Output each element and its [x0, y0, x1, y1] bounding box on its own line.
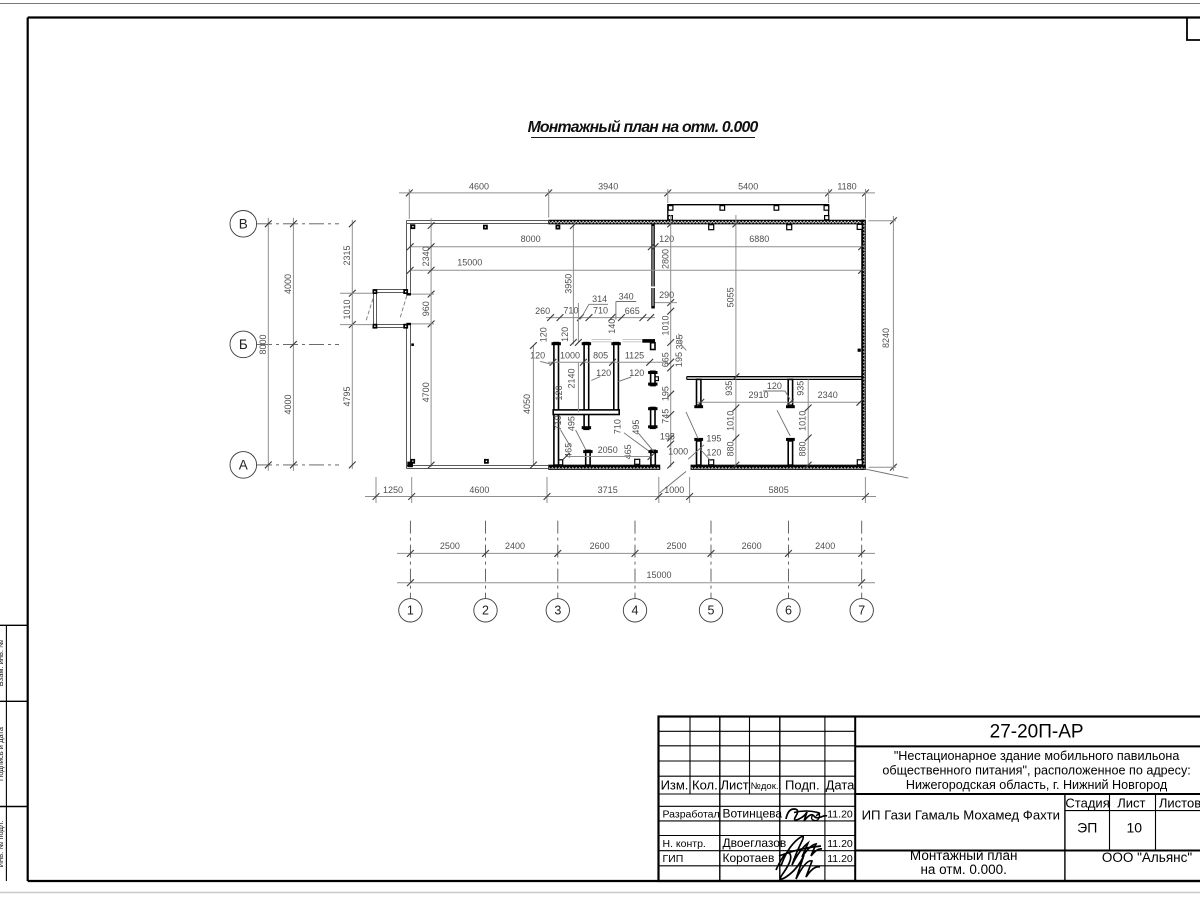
svg-text:195: 195 — [660, 386, 670, 401]
svg-text:15000: 15000 — [646, 570, 671, 580]
svg-text:4000: 4000 — [283, 274, 293, 294]
svg-text:935: 935 — [724, 381, 734, 396]
svg-text:120: 120 — [596, 368, 611, 378]
svg-text:Разработал: Разработал — [663, 808, 720, 820]
svg-text:120: 120 — [554, 385, 564, 400]
svg-text:ИП Гази Гамаль Мохамед Фахти: ИП Гази Гамаль Мохамед Фахти — [862, 808, 1060, 823]
svg-text:Монтажный план на отм. 0.000: Монтажный план на отм. 0.000 — [528, 119, 759, 136]
svg-text:1010: 1010 — [798, 411, 808, 431]
svg-text:340: 340 — [619, 291, 634, 301]
svg-text:1125: 1125 — [625, 351, 644, 361]
svg-text:195: 195 — [674, 352, 684, 367]
svg-text:Двоеглазов: Двоеглазов — [723, 836, 787, 850]
svg-text:4: 4 — [632, 604, 639, 618]
svg-text:10: 10 — [1127, 820, 1143, 836]
svg-text:2050: 2050 — [598, 445, 618, 455]
svg-text:710: 710 — [553, 415, 563, 430]
svg-text:1250: 1250 — [383, 485, 403, 495]
svg-text:195: 195 — [706, 434, 721, 444]
svg-text:4600: 4600 — [469, 181, 489, 191]
svg-text:120: 120 — [629, 368, 644, 378]
svg-text:3715: 3715 — [598, 485, 618, 495]
svg-text:6880: 6880 — [749, 234, 769, 244]
svg-text:880: 880 — [798, 441, 808, 456]
svg-text:Лист: Лист — [720, 778, 748, 793]
svg-text:Подпись и дата: Подпись и дата — [0, 726, 5, 781]
svg-text:2910: 2910 — [748, 390, 768, 400]
svg-text:4795: 4795 — [342, 386, 352, 406]
svg-text:Дата: Дата — [826, 778, 856, 793]
svg-text:Стадия: Стадия — [1065, 796, 1109, 811]
svg-text:2340: 2340 — [421, 246, 431, 266]
svg-text:2315: 2315 — [342, 245, 352, 265]
svg-text:2500: 2500 — [666, 541, 686, 551]
svg-text:4000: 4000 — [283, 394, 293, 414]
svg-text:260: 260 — [535, 306, 550, 316]
svg-text:Б: Б — [239, 337, 248, 352]
svg-text:2600: 2600 — [590, 541, 610, 551]
svg-text:745: 745 — [660, 409, 670, 424]
svg-text:Листов: Листов — [1159, 796, 1200, 811]
svg-text:4050: 4050 — [522, 394, 532, 414]
svg-text:710: 710 — [613, 419, 623, 434]
svg-text:880: 880 — [725, 441, 735, 456]
svg-text:Н. контр.: Н. контр. — [663, 838, 706, 850]
svg-text:2400: 2400 — [505, 541, 525, 551]
svg-text:3950: 3950 — [563, 274, 573, 294]
svg-text:465: 465 — [563, 443, 573, 458]
svg-text:Вотинцева: Вотинцева — [723, 807, 783, 821]
svg-text:8240: 8240 — [881, 328, 891, 348]
svg-text:Нижегородская область, г. Нижн: Нижегородская область, г. Нижний Новгоро… — [906, 778, 1168, 792]
svg-text:2400: 2400 — [815, 541, 835, 551]
svg-text:Инв. № подл.: Инв. № подл. — [0, 821, 5, 868]
svg-text:120: 120 — [706, 447, 721, 457]
svg-text:1000: 1000 — [664, 485, 684, 495]
svg-text:1010: 1010 — [725, 411, 735, 431]
svg-text:465: 465 — [623, 444, 633, 459]
svg-text:290: 290 — [659, 290, 674, 300]
svg-text:4600: 4600 — [469, 485, 489, 495]
svg-text:665: 665 — [625, 306, 640, 316]
svg-text:2500: 2500 — [440, 541, 460, 551]
svg-text:ЭП: ЭП — [1077, 820, 1097, 836]
svg-text:5: 5 — [708, 604, 715, 618]
svg-text:1010: 1010 — [660, 315, 670, 335]
svg-text:2340: 2340 — [818, 390, 838, 400]
svg-text:710: 710 — [593, 306, 608, 316]
svg-text:7: 7 — [858, 604, 865, 618]
svg-text:8000: 8000 — [258, 334, 268, 354]
svg-text:960: 960 — [421, 301, 431, 316]
svg-text:665: 665 — [660, 352, 670, 367]
svg-text:Изм.: Изм. — [661, 778, 689, 793]
svg-text:140: 140 — [607, 319, 617, 334]
svg-text:314: 314 — [592, 294, 607, 304]
svg-text:Кол.: Кол. — [692, 778, 718, 793]
svg-text:"Нестационарное здание мобильн: "Нестационарное здание мобильного павиль… — [894, 749, 1180, 763]
svg-text:120: 120 — [538, 327, 548, 342]
svg-text:2600: 2600 — [742, 541, 762, 551]
svg-text:Лист: Лист — [1117, 796, 1145, 811]
svg-text:ГИП: ГИП — [663, 853, 684, 865]
svg-text:11.20: 11.20 — [827, 838, 853, 850]
svg-text:805: 805 — [593, 351, 608, 361]
svg-text:на отм. 0.000.: на отм. 0.000. — [920, 862, 1006, 877]
svg-text:11.20: 11.20 — [827, 853, 853, 865]
svg-text:1180: 1180 — [837, 181, 856, 191]
svg-text:120: 120 — [560, 327, 570, 342]
svg-text:15000: 15000 — [457, 258, 482, 268]
svg-text:№док.: №док. — [751, 781, 779, 792]
svg-text:Монтажный план: Монтажный план — [910, 848, 1018, 863]
svg-text:2800: 2800 — [660, 249, 670, 269]
svg-text:Коротаев: Коротаев — [723, 851, 775, 865]
svg-text:710: 710 — [563, 306, 578, 316]
svg-text:3: 3 — [554, 604, 561, 618]
svg-text:120: 120 — [530, 351, 545, 361]
svg-text:1010: 1010 — [342, 299, 352, 319]
svg-text:В: В — [239, 217, 248, 232]
svg-text:Взам. инв. №: Взам. инв. № — [0, 640, 5, 686]
svg-text:ООО "Альянс": ООО "Альянс" — [1102, 850, 1192, 865]
svg-text:2: 2 — [482, 604, 489, 618]
svg-text:5055: 5055 — [726, 287, 736, 307]
svg-text:А: А — [239, 458, 248, 473]
svg-text:3940: 3940 — [598, 181, 618, 191]
svg-text:27-20П-АР: 27-20П-АР — [990, 721, 1084, 742]
svg-text:8000: 8000 — [521, 234, 541, 244]
svg-text:5400: 5400 — [738, 181, 758, 191]
svg-text:Подп.: Подп. — [785, 778, 820, 793]
svg-text:2140: 2140 — [567, 368, 577, 388]
svg-text:495: 495 — [567, 416, 577, 431]
svg-text:935: 935 — [796, 381, 806, 396]
svg-text:1: 1 — [407, 604, 414, 618]
svg-text:1000: 1000 — [560, 351, 580, 361]
svg-text:4700: 4700 — [421, 382, 431, 402]
svg-text:общественного питания", распол: общественного питания", расположенное по… — [882, 763, 1190, 777]
svg-text:1000: 1000 — [668, 446, 688, 456]
svg-text:120: 120 — [767, 381, 782, 391]
svg-text:195: 195 — [660, 432, 675, 442]
svg-text:120: 120 — [659, 234, 674, 244]
svg-text:5805: 5805 — [769, 485, 789, 495]
svg-text:6: 6 — [785, 604, 792, 618]
svg-text:11.20: 11.20 — [827, 809, 853, 821]
svg-text:495: 495 — [631, 420, 641, 435]
